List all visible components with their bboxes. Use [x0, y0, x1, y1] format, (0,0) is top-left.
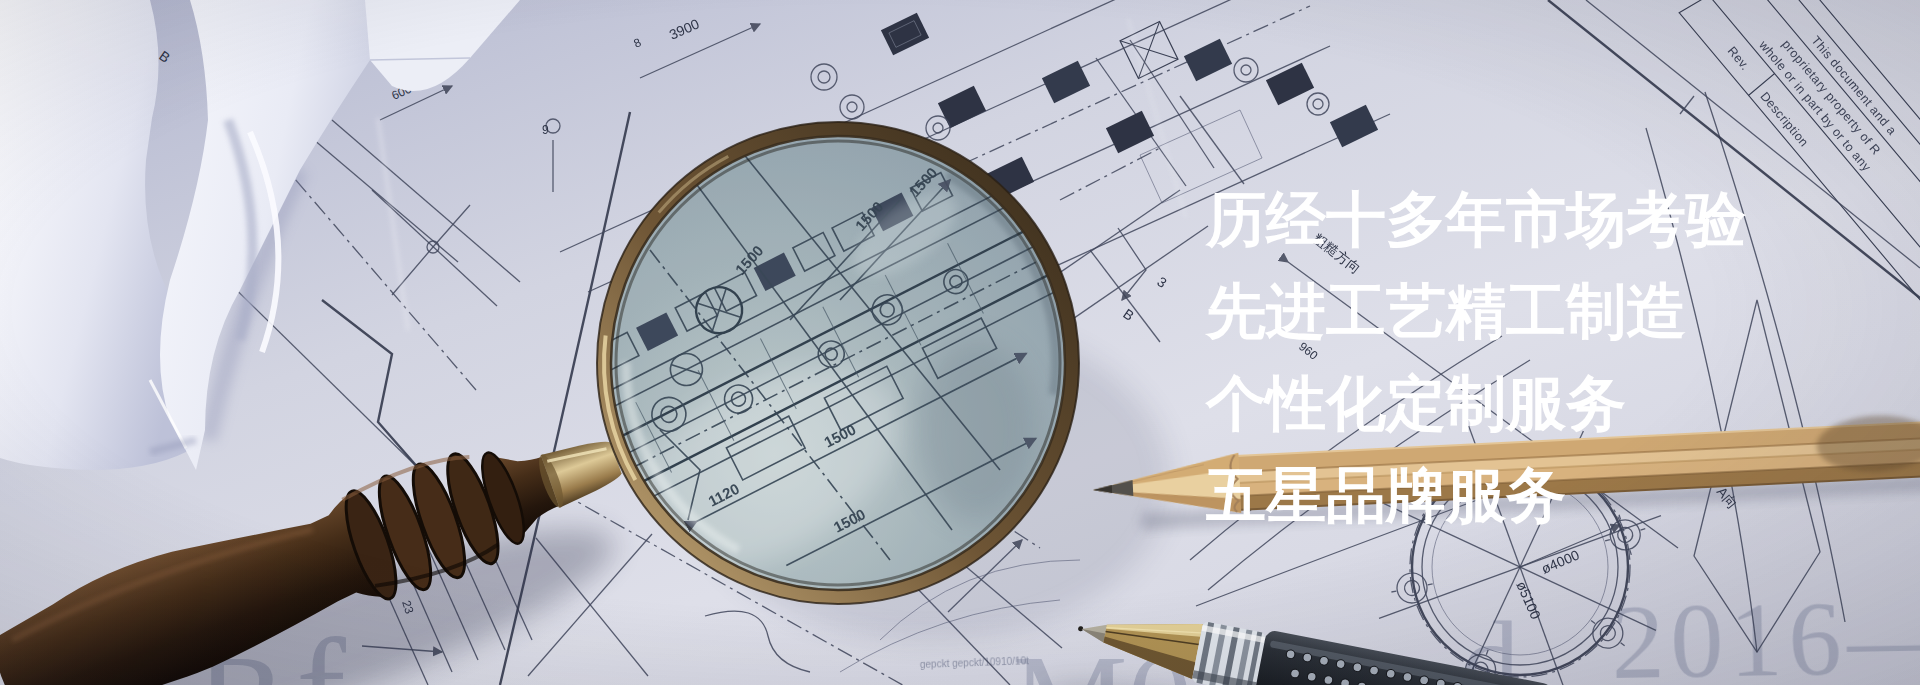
hero-banner: B f M0 d 2016— gepckt gepckt/10910/10t — [0, 0, 1920, 685]
headline-line-1: 历经十多年市场考验 — [1206, 174, 1746, 266]
headline-line-3: 个性化定制服务 — [1206, 358, 1746, 450]
headline-line-4: 五星品牌服务 — [1206, 450, 1746, 542]
headline-line-2: 先进工艺精工制造 — [1206, 266, 1746, 358]
hero-headline: 历经十多年市场考验 先进工艺精工制造 个性化定制服务 五星品牌服务 — [1206, 174, 1746, 542]
